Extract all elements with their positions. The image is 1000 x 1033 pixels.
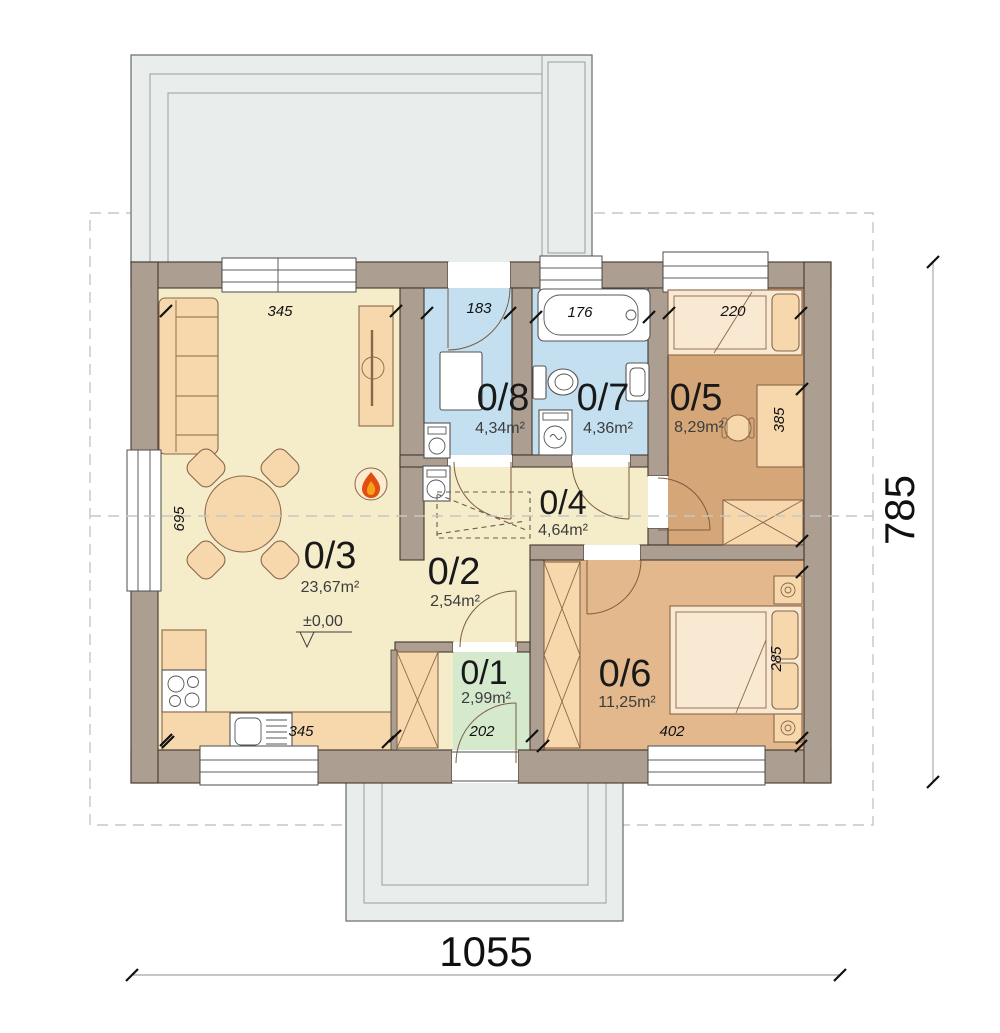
dim-overall-width: 1055	[439, 928, 532, 975]
room-0-2-area: 2,54m²	[430, 593, 480, 610]
room-0-6-area: 11,25m²	[598, 694, 656, 711]
room-0-3-number: 0/3	[304, 535, 357, 577]
dim-bed5: 220	[719, 303, 746, 320]
dim-room5-depth: 385	[771, 407, 788, 433]
dim-overall-height: 785	[876, 475, 923, 545]
cooktop	[162, 670, 206, 712]
dim-bathtub: 176	[567, 304, 593, 321]
living-side-window	[127, 450, 161, 591]
room-0-8-number: 0/8	[477, 377, 530, 419]
tv-cabinet	[359, 306, 393, 426]
wardrobe-0-6	[544, 562, 580, 748]
room-0-4-number: 0/4	[539, 484, 586, 522]
terrace	[131, 55, 592, 263]
nightstand-top	[774, 576, 802, 604]
washing-machine	[539, 410, 572, 455]
floor-plan-page: ±0,00 0/3 23,67m² 0/2 2,54m² 0/1 2,99m² …	[0, 0, 1000, 1033]
dim-kitchen-run: 345	[288, 723, 314, 740]
room-0-1-area: 2,99m²	[461, 690, 511, 707]
office-chair	[722, 415, 754, 441]
room-0-5-number: 0/5	[670, 377, 723, 419]
nightstand-bottom	[774, 714, 802, 742]
room-0-5-area: 8,29m²	[674, 419, 724, 436]
dim-room6-width: 402	[659, 723, 685, 740]
living-window	[222, 258, 356, 292]
dim-living-depth: 695	[171, 506, 188, 532]
room-0-7-area: 4,36m²	[583, 420, 633, 437]
wardrobe-0-1	[397, 652, 438, 748]
dim-living-width: 345	[267, 303, 293, 320]
kitchen-window	[200, 746, 318, 785]
bathtub	[538, 289, 650, 341]
room-0-3-area: 23,67m²	[301, 579, 360, 596]
dim-room6-depth: 285	[768, 646, 785, 673]
dim-room8-width: 183	[466, 300, 492, 317]
room-0-8-area: 4,34m²	[475, 420, 525, 437]
room-0-6-number: 0/6	[599, 653, 652, 695]
sofa	[159, 298, 218, 454]
level-value: ±0,00	[303, 613, 343, 630]
dim-hall-width: 202	[468, 723, 495, 740]
floor-plan-drawing: ±0,00 0/3 23,67m² 0/2 2,54m² 0/1 2,99m² …	[0, 0, 1000, 1033]
room-0-2-number: 0/2	[428, 551, 481, 593]
kitchen-cabinet	[162, 630, 206, 670]
room5-window	[663, 252, 768, 292]
room-0-4-area: 4,64m²	[538, 522, 588, 539]
room-0-1-number: 0/1	[460, 654, 507, 692]
bathroom-sink	[626, 363, 649, 401]
room-0-7-number: 0/7	[577, 377, 630, 419]
room6-window	[648, 746, 765, 785]
entrance-porch	[346, 782, 623, 921]
wardrobe-0-5	[723, 500, 803, 545]
wall-0-5-0-6	[640, 545, 804, 560]
bath-window	[540, 256, 602, 292]
wall-living-core	[400, 288, 424, 560]
wall-hall-0-6	[530, 560, 544, 750]
fireplace	[355, 468, 387, 500]
bed-single-0-5	[668, 290, 802, 355]
